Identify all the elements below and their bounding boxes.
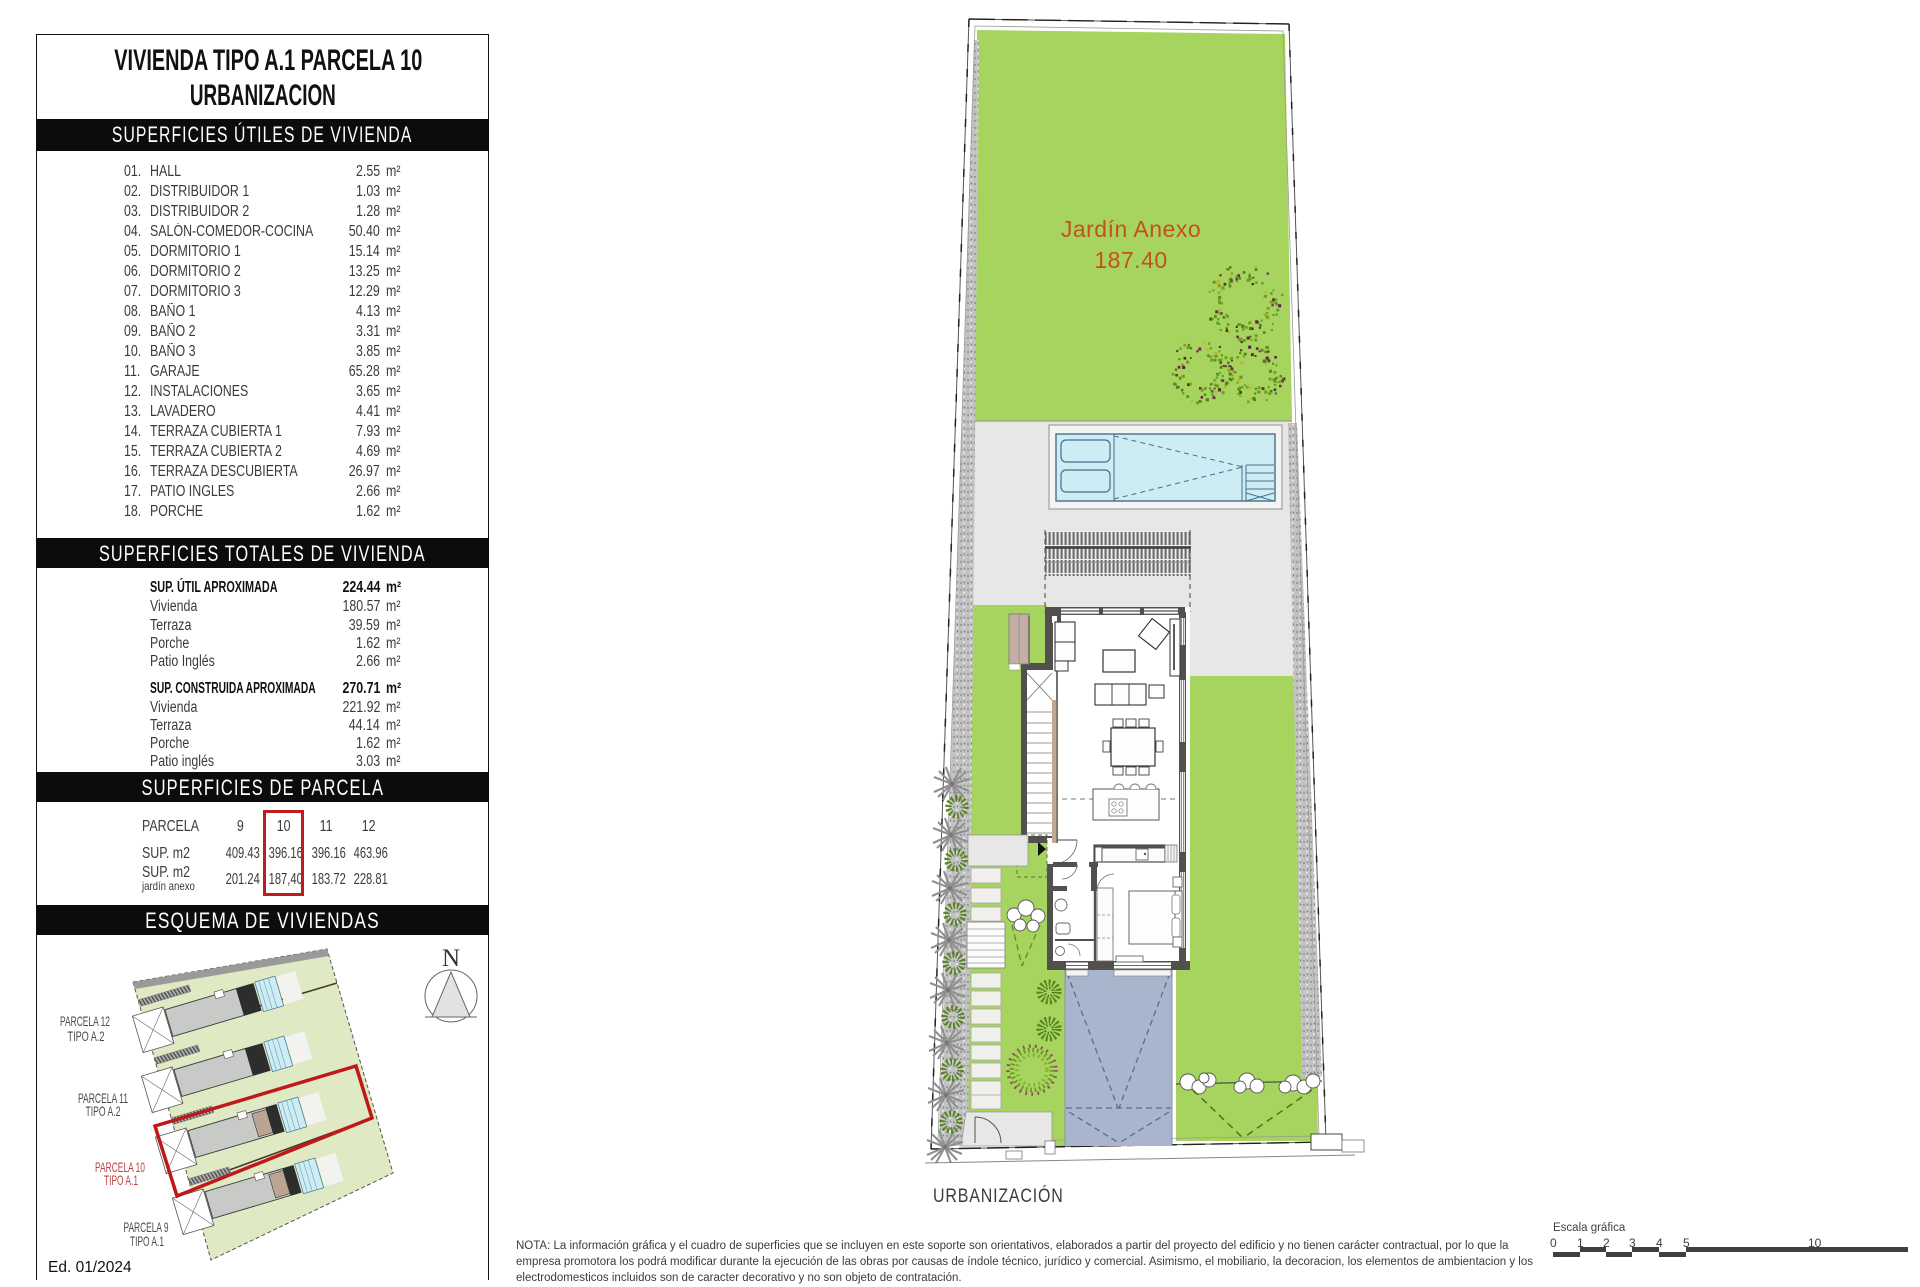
svg-text:PARCELA 9: PARCELA 9: [124, 1220, 169, 1235]
svg-text:Jardín Anexo: Jardín Anexo: [1061, 216, 1201, 242]
svg-text:TIPO A.1: TIPO A.1: [104, 1173, 138, 1188]
svg-text:TIPO A.2: TIPO A.2: [68, 1029, 105, 1044]
svg-text:TIPO A.1: TIPO A.1: [130, 1234, 164, 1249]
svg-text:PARCELA 12: PARCELA 12: [60, 1014, 110, 1029]
svg-text:N: N: [442, 945, 460, 972]
svg-text:TIPO A.2: TIPO A.2: [86, 1104, 121, 1119]
svg-text:187.40: 187.40: [1094, 247, 1167, 273]
